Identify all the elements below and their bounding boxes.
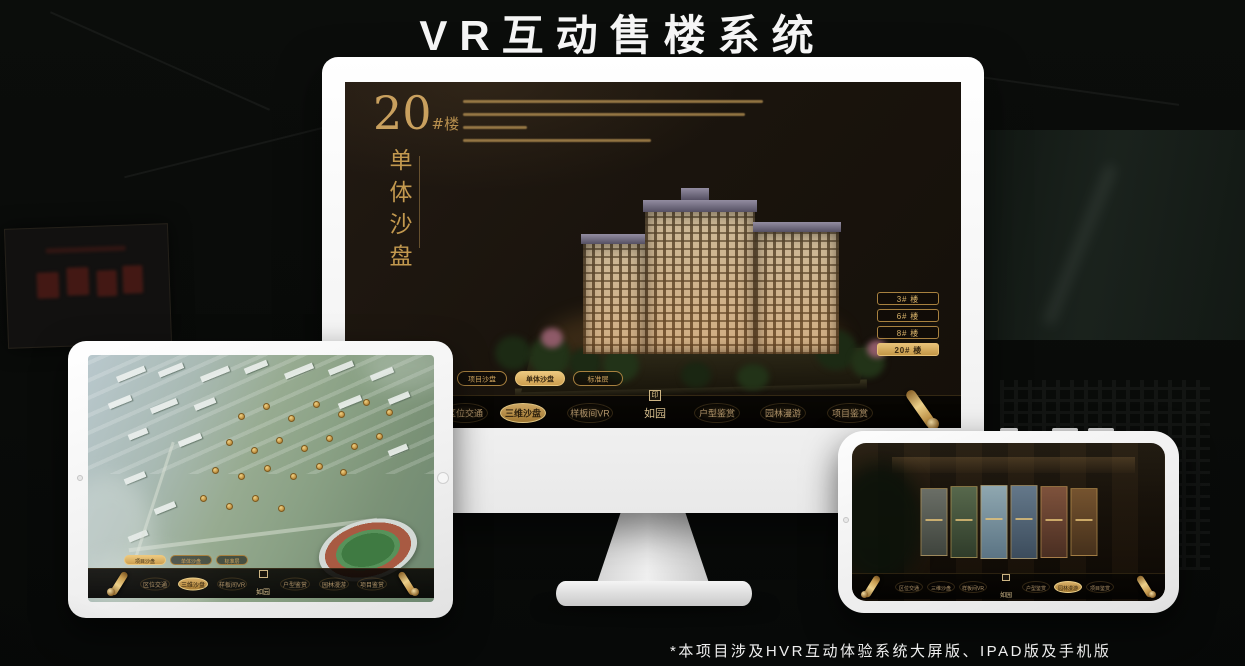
- description-text-line: [463, 139, 651, 142]
- background-map-line: [981, 76, 1179, 106]
- tablet-menu-item-project-gallery[interactable]: 项目鉴赏: [352, 569, 392, 599]
- building-marker[interactable]: [200, 495, 207, 502]
- sub-tab-single[interactable]: 单体沙盘: [515, 371, 565, 386]
- building-unit-label: #楼: [432, 115, 460, 133]
- tablet-menu-item-garden-tour[interactable]: 园林漫游: [314, 569, 354, 599]
- footnote: *本项目涉及HVR互动体验系统大屏版、IPAD版及手机版: [670, 640, 1111, 661]
- tablet-menu-item-unit-plans[interactable]: 户型鉴赏: [275, 569, 315, 599]
- description-text-line: [463, 113, 745, 116]
- tablet-screen: 项目沙盘 单体沙盘 标准层 区位交通 三维沙盘 样板间VR 如园 户型鉴赏 园林…: [88, 355, 434, 602]
- building-marker[interactable]: [301, 445, 308, 452]
- tablet-menu-item-sandtable[interactable]: 三维沙盘: [173, 569, 213, 599]
- phone-screen: 区位交通 三维沙盘 样板间VR 如园 户型鉴赏 园林漫游 项目鉴赏: [852, 443, 1165, 601]
- roof-penthouse: [681, 188, 709, 200]
- building-marker[interactable]: [226, 503, 233, 510]
- headline-subtitle: 单体沙盘: [381, 148, 415, 276]
- gallery-card[interactable]: [920, 488, 947, 556]
- map-building: [154, 501, 177, 515]
- phone: 区位交通 三维沙盘 样板间VR 如园 户型鉴赏 园林漫游 项目鉴赏: [838, 431, 1179, 613]
- description-text-line: [463, 100, 763, 103]
- building-marker[interactable]: [263, 403, 270, 410]
- interior-beam: [892, 457, 1135, 473]
- building-number-heading: 20#楼: [373, 90, 459, 136]
- roof: [753, 222, 841, 232]
- floor-button-group: 3# 楼 6# 楼 8# 楼 20# 楼: [877, 292, 939, 356]
- monitor-stand: [597, 513, 709, 583]
- building-marker[interactable]: [386, 409, 393, 416]
- tree: [737, 364, 769, 390]
- building-marker[interactable]: [212, 467, 219, 474]
- building-marker[interactable]: [288, 415, 295, 422]
- building-marker[interactable]: [376, 433, 383, 440]
- menu-item-sandtable[interactable]: 三维沙盘: [503, 396, 543, 428]
- scroll-icon[interactable]: [897, 388, 945, 428]
- building-model: [485, 152, 905, 404]
- building-marker[interactable]: [351, 443, 358, 450]
- scroll-icon[interactable]: [394, 571, 420, 597]
- gallery-card[interactable]: [1010, 485, 1037, 559]
- building-wing-left: [583, 244, 645, 354]
- menu-item-unit-plans[interactable]: 户型鉴赏: [697, 396, 737, 428]
- building-marker[interactable]: [264, 465, 271, 472]
- building-marker[interactable]: [340, 469, 347, 476]
- sub-tab-group: 项目沙盘 单体沙盘 标准层: [457, 371, 623, 386]
- building-marker[interactable]: [363, 399, 370, 406]
- building-marker[interactable]: [252, 495, 259, 502]
- building-center: [645, 212, 755, 354]
- tablet: 项目沙盘 单体沙盘 标准层 区位交通 三维沙盘 样板间VR 如园 户型鉴赏 园林…: [68, 341, 453, 618]
- floor-button-8[interactable]: 8# 楼: [877, 326, 939, 339]
- building-marker[interactable]: [326, 435, 333, 442]
- phone-menu-bar: 区位交通 三维沙盘 样板间VR 如园 户型鉴赏 园林漫游 项目鉴赏: [852, 573, 1165, 599]
- tablet-sub-tab-group: 项目沙盘 单体沙盘 标准层: [124, 555, 248, 565]
- building-marker[interactable]: [251, 447, 258, 454]
- building-marker[interactable]: [238, 473, 245, 480]
- floor-button-20[interactable]: 20# 楼: [877, 343, 939, 356]
- menu-item-garden-tour[interactable]: 园林漫游: [763, 396, 803, 428]
- seal-icon: [1002, 574, 1010, 581]
- sub-tab-project[interactable]: 项目沙盘: [457, 371, 507, 386]
- page-title: VR互动售楼系统: [0, 2, 1245, 63]
- phone-brand-logo[interactable]: 如园: [1000, 574, 1012, 601]
- tablet-home-button[interactable]: [437, 472, 449, 484]
- menu-item-showroom-vr[interactable]: 样板间VR: [568, 396, 612, 428]
- background-plaque: [4, 223, 172, 349]
- scroll-icon[interactable]: [860, 575, 884, 599]
- blossom-tree: [541, 328, 563, 348]
- tablet-camera-icon: [77, 475, 83, 481]
- phone-menu-item-project-gallery[interactable]: 项目鉴赏: [1080, 574, 1120, 600]
- scroll-icon[interactable]: [1133, 575, 1157, 599]
- monitor-stand-base: [556, 581, 752, 606]
- building-marker[interactable]: [338, 411, 345, 418]
- building-marker[interactable]: [276, 437, 283, 444]
- brand-logo[interactable]: 印如园: [644, 390, 666, 421]
- gallery-card[interactable]: [980, 485, 1007, 559]
- gallery-card[interactable]: [1040, 486, 1067, 558]
- seal-icon: 印: [649, 390, 661, 401]
- seal-icon: [259, 570, 268, 578]
- phone-camera-icon: [843, 517, 849, 523]
- stage: VR互动售楼系统 20#楼 单体沙盘: [0, 0, 1245, 666]
- roof: [643, 200, 757, 212]
- tablet-menu-bar: 区位交通 三维沙盘 样板间VR 如园 户型鉴赏 园林漫游 项目鉴赏: [88, 568, 434, 598]
- gallery-card-strip: [920, 485, 1097, 559]
- gallery-card[interactable]: [950, 486, 977, 558]
- floor-button-6[interactable]: 6# 楼: [877, 309, 939, 322]
- background-photo-panel: [985, 130, 1245, 340]
- headline-rule: [419, 156, 420, 248]
- gallery-card[interactable]: [1070, 488, 1097, 556]
- tablet-menu-item-showroom-vr[interactable]: 样板间VR: [210, 569, 254, 599]
- phone-menu-item-showroom-vr[interactable]: 样板间VR: [951, 574, 995, 600]
- background-river: [1044, 164, 1117, 325]
- building-marker[interactable]: [316, 463, 323, 470]
- tablet-brand-logo[interactable]: 如园: [256, 570, 270, 598]
- building-marker[interactable]: [278, 505, 285, 512]
- menu-item-project-gallery[interactable]: 项目鉴赏: [830, 396, 870, 428]
- tablet-sub-tab-single[interactable]: 单体沙盘: [170, 555, 212, 565]
- sub-tab-floorplate[interactable]: 标准层: [573, 371, 623, 386]
- tree: [681, 362, 711, 388]
- building-marker[interactable]: [313, 401, 320, 408]
- description-text-line: [463, 126, 527, 129]
- floor-button-3[interactable]: 3# 楼: [877, 292, 939, 305]
- tree: [495, 336, 531, 370]
- building-wing-right: [755, 232, 839, 354]
- tablet-sub-tab-floorplate[interactable]: 标准层: [216, 555, 248, 565]
- building-marker[interactable]: [226, 439, 233, 446]
- tablet-menu-item-location[interactable]: 区位交通: [135, 569, 175, 599]
- scroll-icon[interactable]: [106, 571, 132, 597]
- tablet-sub-tab-project[interactable]: 项目沙盘: [124, 555, 166, 565]
- building-marker[interactable]: [290, 473, 297, 480]
- building-marker[interactable]: [238, 413, 245, 420]
- roof: [581, 234, 647, 244]
